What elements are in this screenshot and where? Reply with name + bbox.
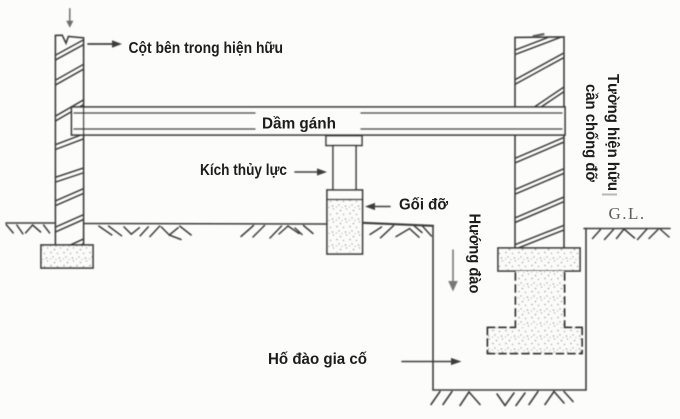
svg-text:Gối đỡ: Gối đỡ (399, 197, 449, 214)
svg-text:Hố đào gia cố: Hố đào gia cố (268, 351, 368, 368)
svg-text:Dầm gánh: Dầm gánh (262, 116, 336, 133)
svg-text:G.L.: G.L. (609, 204, 646, 223)
svg-text:cần chống đỡ: cần chống đỡ (582, 84, 599, 183)
svg-text:Kích thủy lực: Kích thủy lực (200, 162, 287, 179)
svg-text:Hướng đào: Hướng đào (466, 214, 483, 294)
svg-text:Tường hiện hữu: Tường hiện hữu (604, 74, 621, 191)
svg-text:Cột bên trong hiện hữu: Cột bên trong hiện hữu (129, 40, 284, 57)
